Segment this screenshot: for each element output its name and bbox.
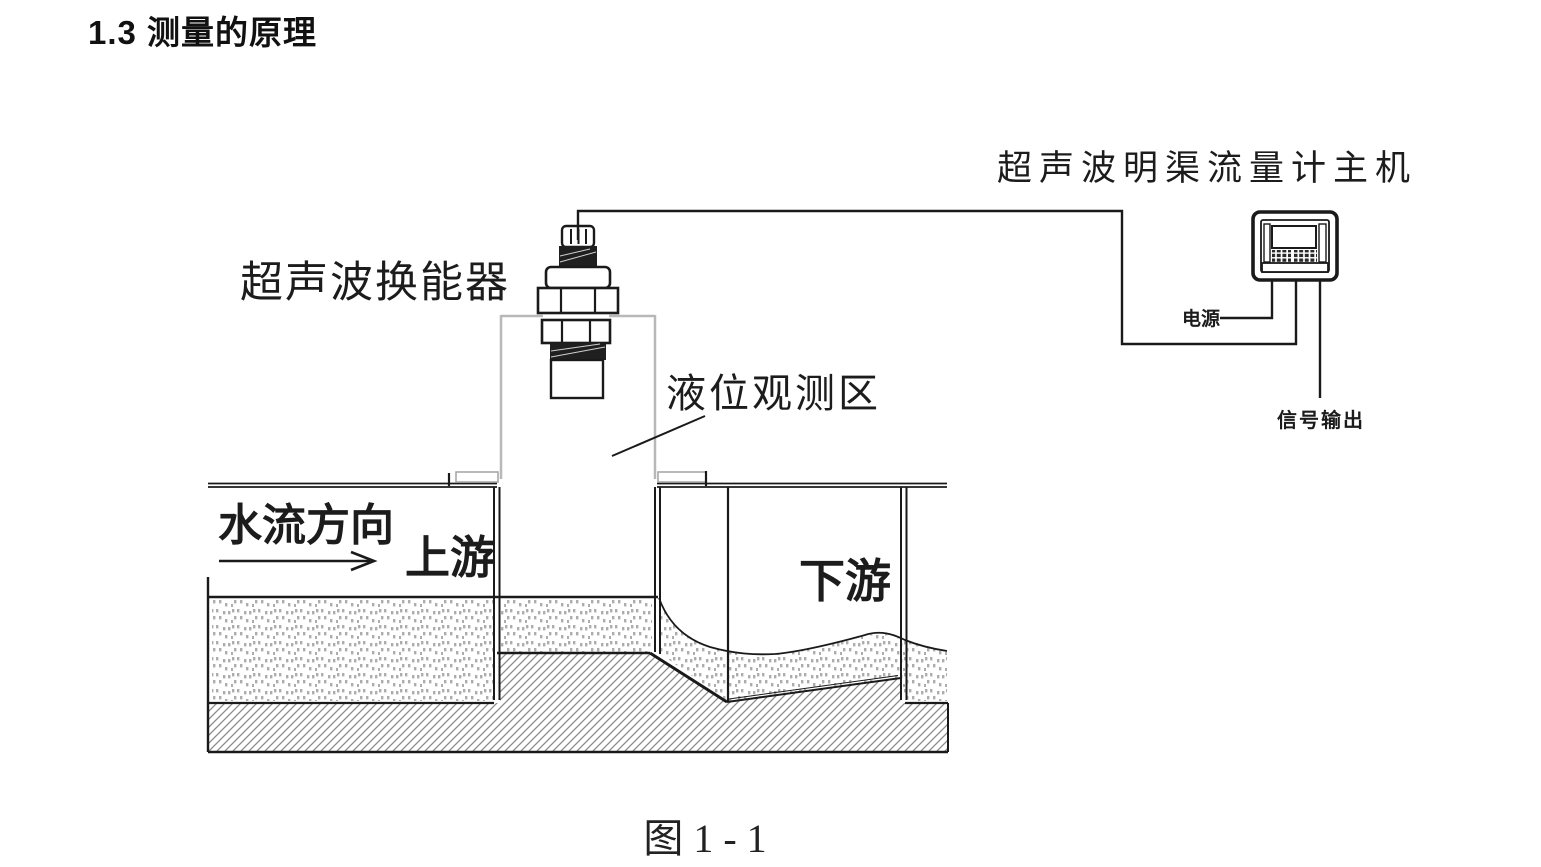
ultrasonic-transducer-drawing xyxy=(538,226,618,398)
label-power: 电源 xyxy=(1182,307,1220,330)
figure-caption: 图 1 - 1 xyxy=(0,806,1410,864)
keypad xyxy=(1272,250,1317,263)
measurement-principle-diagram: 超声波明渠流量计主机 超声波换能器 液位观测区 水流方向 上游 下游 电源 信号… xyxy=(0,0,1541,867)
label-main-unit: 超声波明渠流量计主机 xyxy=(997,149,1417,188)
bottom-bar xyxy=(1262,263,1328,272)
label-signal-output: 信号输出 xyxy=(1277,408,1365,432)
level-zone-leader-line xyxy=(612,416,705,456)
flow-meter-main-unit xyxy=(1253,212,1337,280)
label-upstream: 上游 xyxy=(405,533,495,583)
label-transducer: 超声波换能器 xyxy=(240,260,510,307)
label-downstream: 下游 xyxy=(799,556,891,607)
label-flow-direction: 水流方向 xyxy=(218,501,394,550)
power-wire xyxy=(1220,281,1272,318)
display-screen xyxy=(1272,226,1316,248)
label-level-observation-zone: 液位观测区 xyxy=(666,371,881,416)
document-page: 1.3 测量的原理 xyxy=(0,0,1541,867)
cables xyxy=(578,211,1320,398)
